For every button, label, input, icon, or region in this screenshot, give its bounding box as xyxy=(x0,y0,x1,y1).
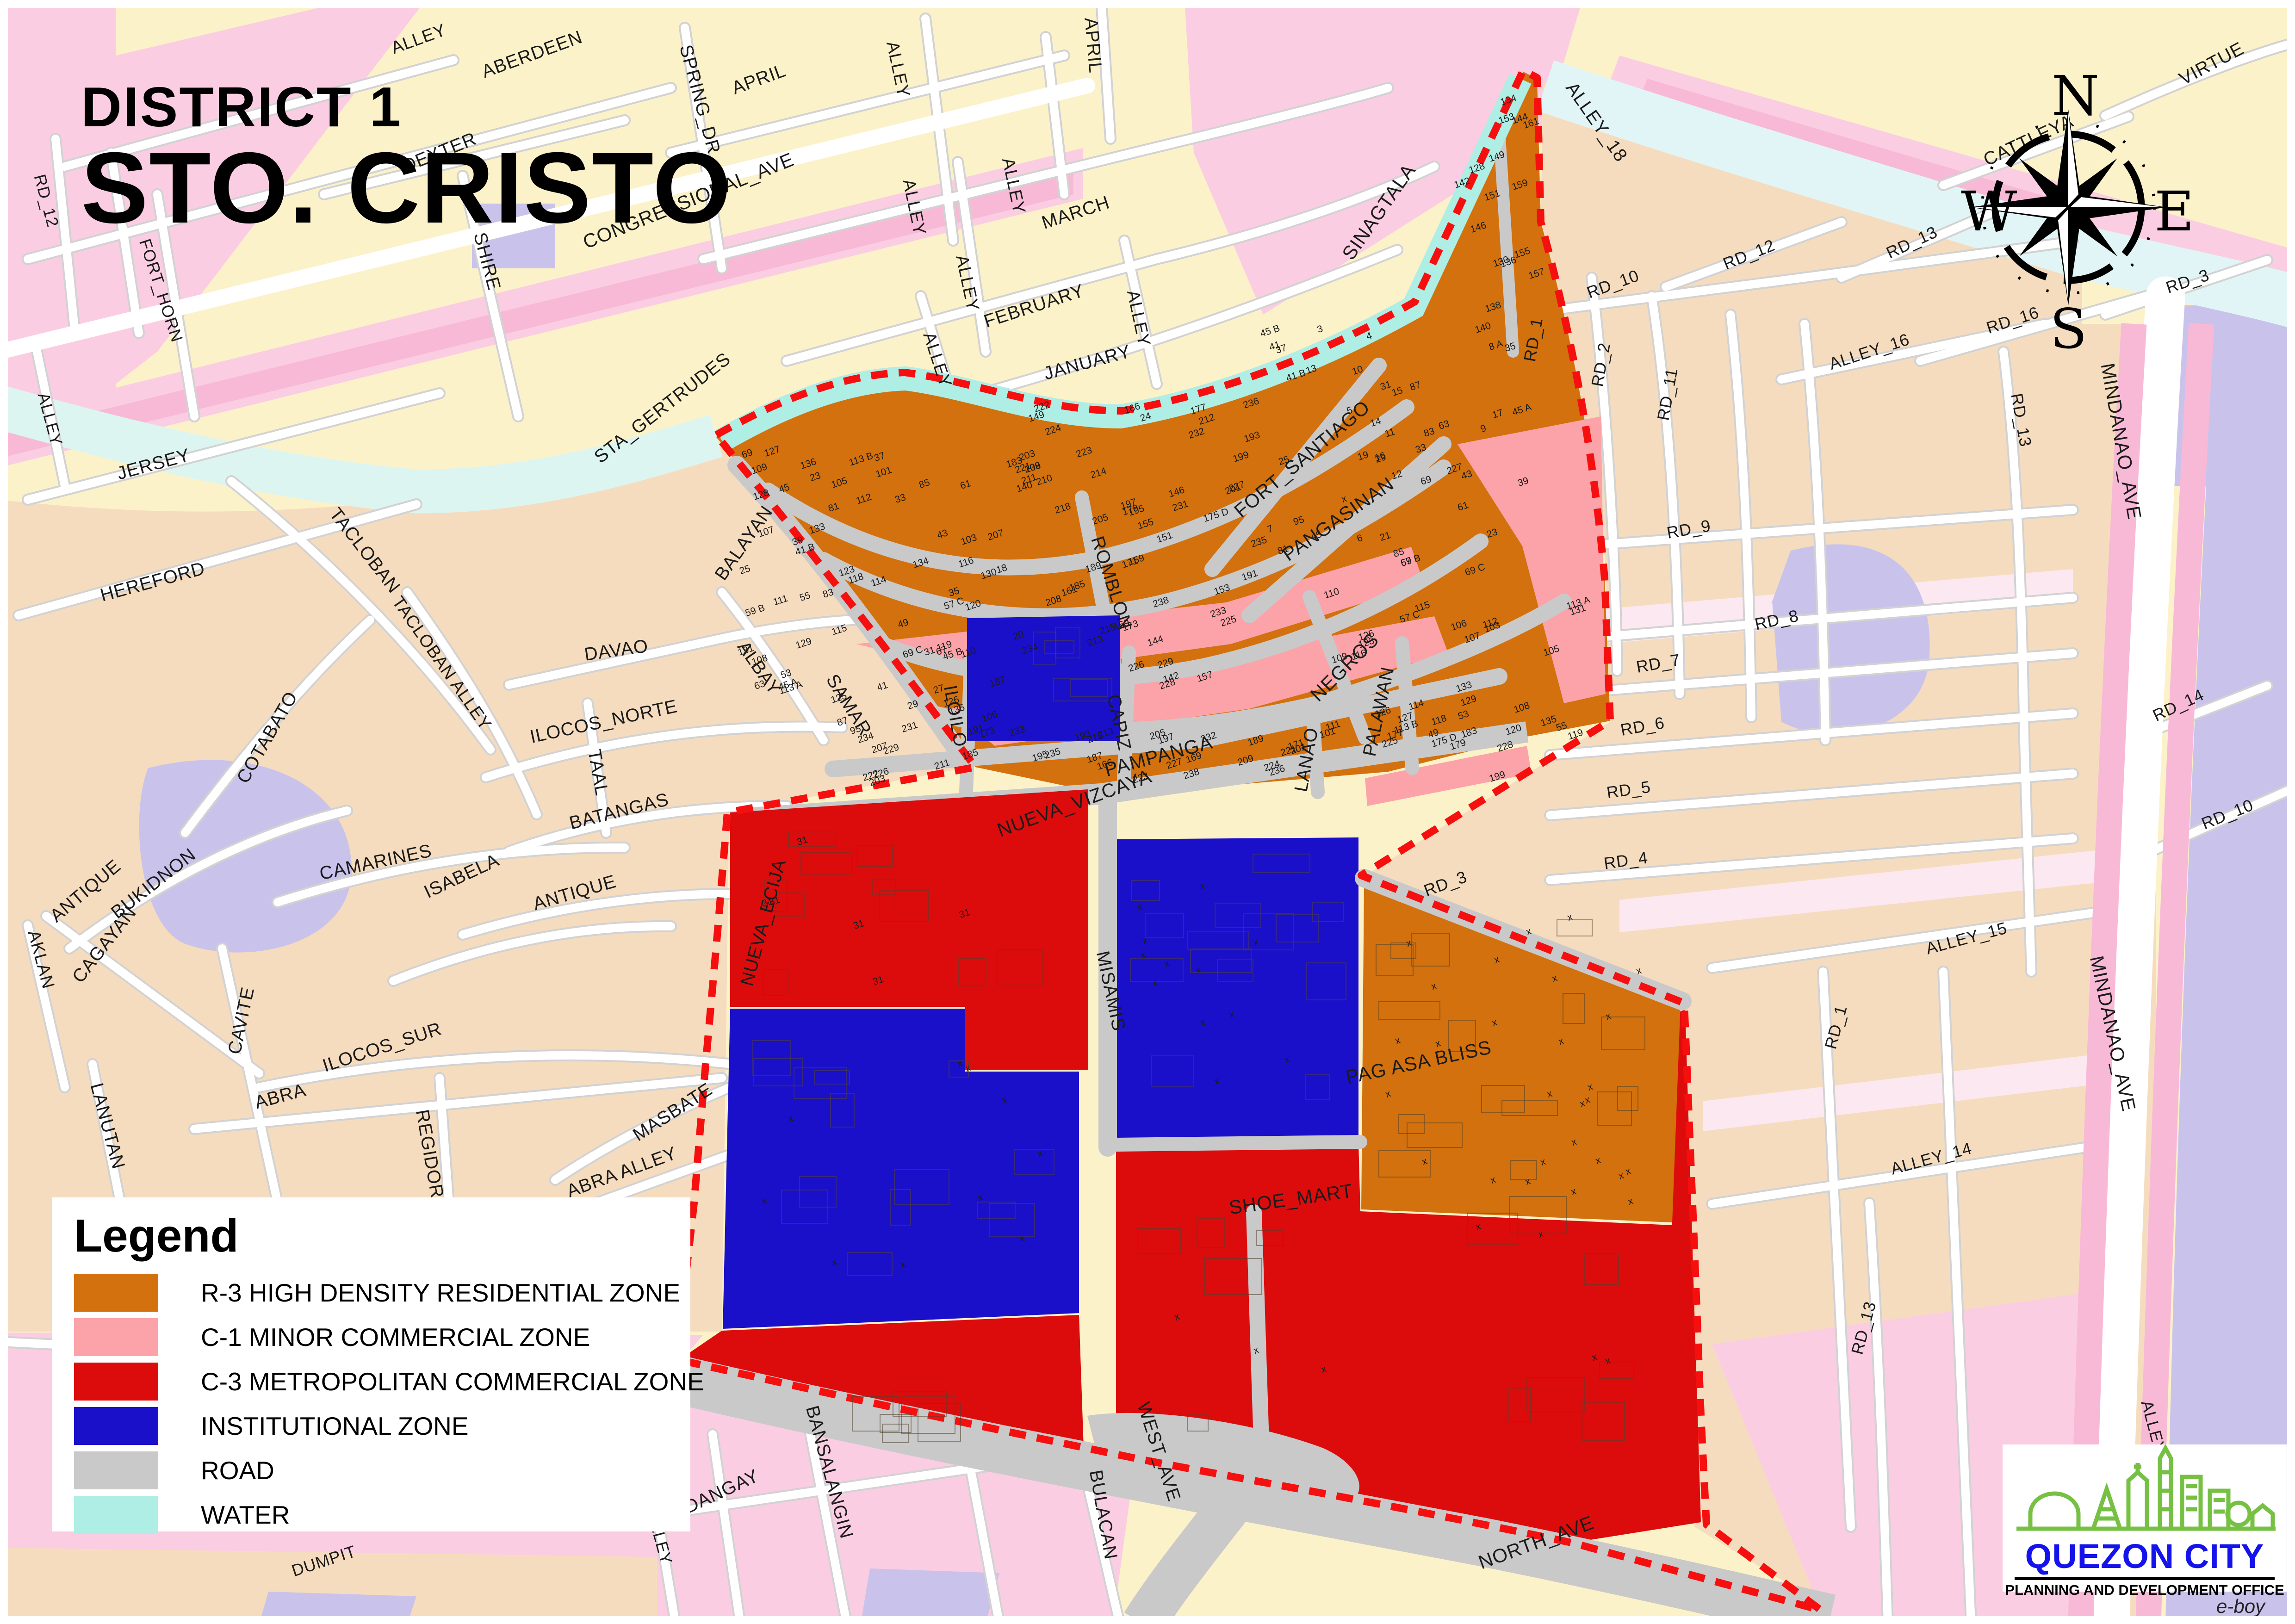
map-frame xyxy=(0,0,2295,1624)
zoning-map-canvas: 2729252331333537394141 B434545 A45 B9587… xyxy=(0,0,2295,1624)
